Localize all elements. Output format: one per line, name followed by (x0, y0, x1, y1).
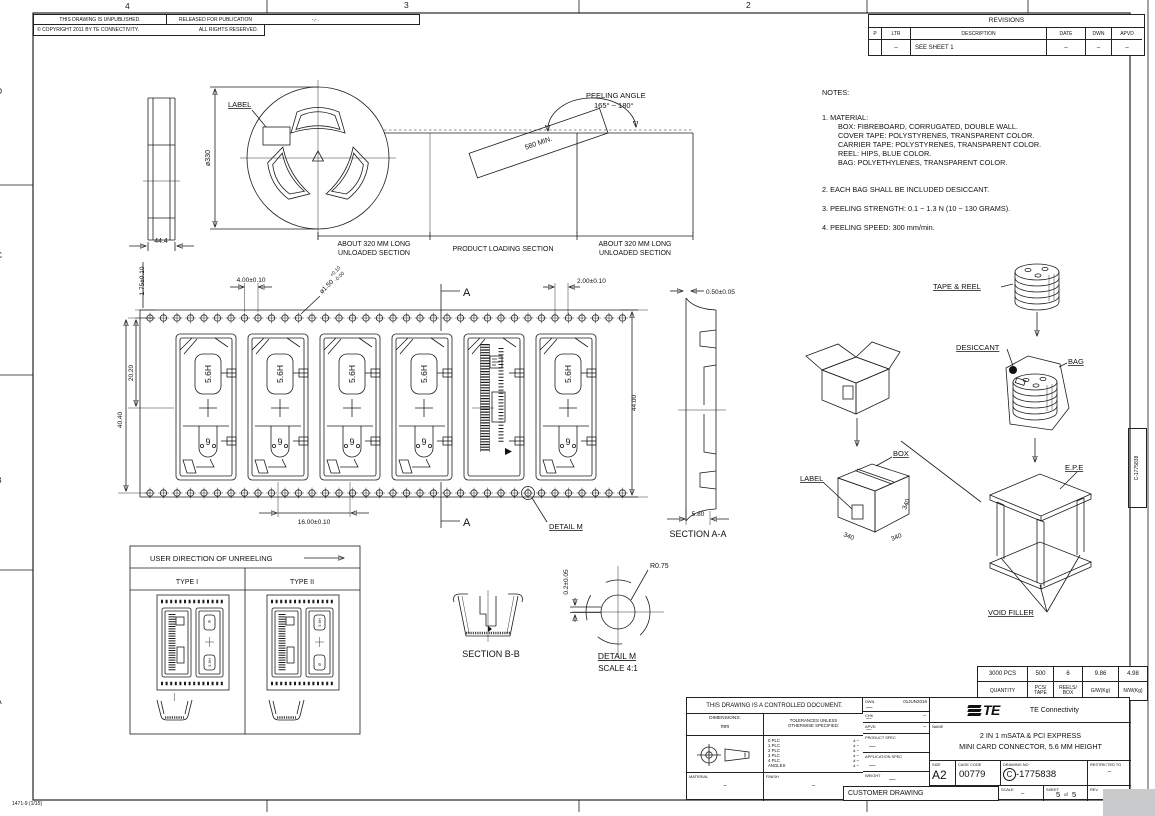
tolerances-cell: TOLERANCES UNLESS OTHERWISE SPECIFIED: (764, 714, 863, 736)
dim-hole-pitch: 4.00±0.10 (237, 277, 266, 284)
open-box (806, 342, 900, 414)
logo-cell: TE TE Connectivity (930, 698, 1131, 723)
svg-text:9: 9 (208, 619, 211, 624)
packaging-flow: TAPE & REEL DESICCANT BAG (800, 264, 1091, 617)
desiccant-label: DESICCANT (956, 343, 1000, 352)
dim-edge-pocket: 2.00±0.10 (577, 278, 606, 285)
unloaded-section-right-2: UNLOADED SECTION (599, 250, 671, 257)
section-bb-title: SECTION B-B (462, 649, 520, 659)
loaded-pocket (464, 334, 524, 480)
cover-tape-peel: 580 MIN. (469, 108, 608, 178)
epe-label: E.P.E (1065, 463, 1083, 472)
void-filler-label: VOID FILLER (988, 608, 1034, 617)
chk-cell: CHK – — (863, 712, 930, 723)
unloaded-section-left-1: ABOUT 320 MM LONG (337, 241, 410, 248)
plc-cell: 0 PLC± – 1 PLC± – 2 PLC± – 3 PLC± – 4 PL… (764, 736, 863, 773)
peeling-angle-value: 165° ~ 180° (594, 101, 634, 110)
revisions-title: REVISIONS (869, 15, 1144, 28)
projection-symbol-icon (687, 736, 764, 773)
zone-number-4: 4 (125, 1, 130, 11)
zone-letter-a: A (0, 696, 2, 706)
quantity-table: 3000 PCS 500 6 9.86 4.98 QUANTITY PCS/TA… (977, 666, 1148, 701)
closed-box: 340 340 340 (838, 464, 912, 543)
dim-tape-width: 44.00 (631, 394, 638, 411)
detail-m-title: DETAIL M (598, 651, 636, 661)
peeling-angle-label: PEELING ANGLE (586, 91, 646, 100)
svg-text:5.6H: 5.6H (207, 658, 212, 667)
projection-cell (687, 736, 764, 773)
unreeling-box: USER DIRECTION OF UNREELING TYPE I TYPE … (130, 546, 360, 734)
dim-pocket-pitch: 16.00±0.10 (298, 519, 331, 526)
te-logo: TE (968, 702, 1000, 718)
bag-label: BAG (1068, 357, 1084, 366)
dim-box-340-height: 340 (901, 498, 912, 511)
dim-hole-to-hole: 40.40 (117, 411, 124, 428)
reel-front-view: LABEL ø330 (205, 80, 396, 240)
reel-label-callout: LABEL (228, 100, 251, 109)
zone-letter-c: C (0, 250, 2, 260)
epe-pallet (990, 474, 1091, 589)
section-a-bottom: A (463, 517, 471, 529)
dim-aa-depth: 5.80 (692, 511, 705, 518)
application-spec-cell: APPLICATION SPEC — (863, 753, 930, 772)
dim-hole-dia: ø1.50 +0.10 -0.00 (316, 265, 347, 296)
corner-gray-patch (1103, 789, 1155, 816)
type1-tape: 9 5.6H (157, 595, 229, 720)
material-cell: MATERIAL – (687, 773, 764, 801)
drawing-no-cell: DRAWING NO C -1775838 (1001, 761, 1088, 786)
company-name: TE Connectivity (1030, 707, 1079, 714)
section-aa-view: 0.50±0.05 5.80 SECTION A-A (667, 289, 735, 539)
reel-label-sticker (263, 127, 290, 145)
name-cell: NAME 2 IN 1 mSATA & PCI EXPRESS MINI CAR… (930, 723, 1131, 761)
svg-text:5.6H: 5.6H (317, 618, 322, 627)
detail-m-view: 0.2±0.05 R0.75 DETAIL M SCALE 4:1 (563, 563, 669, 673)
dim-aa-thickness: 0.50±0.05 (706, 289, 735, 296)
zone-number-2: 2 (746, 0, 751, 10)
zone-letter-b: B (0, 475, 2, 485)
section-a-top: A (463, 287, 471, 299)
dim-hole-to-center: 20.20 (128, 364, 135, 381)
type2-tape: 5.6H 9 (267, 595, 339, 720)
dim-reel-diameter: ø330 (205, 150, 212, 166)
tape-reel-label: TAPE & REEL (933, 282, 981, 291)
margin-drawing-number: C-1775838 (1134, 436, 1140, 500)
product-loading-label: PRODUCT LOADING SECTION (453, 246, 554, 253)
product-spec-cell: PRODUCT SPEC — (863, 734, 930, 753)
part-name-line2: MINI CARD CONNECTOR, 5.6 MM HEIGHT (930, 742, 1131, 751)
detail-m-callout: DETAIL M (549, 522, 583, 531)
dim-detail-radius: R0.75 (650, 563, 669, 570)
customer-drawing-cell: CUSTOMER DRAWING (843, 786, 999, 801)
dim-reel-width: 44.4 (154, 238, 168, 245)
svg-text:ø1.50: ø1.50 (318, 278, 335, 295)
dim-peel-length: 580 MIN. (524, 136, 553, 152)
type1-label: TYPE I (176, 579, 198, 586)
dim-box-340-right: 340 (890, 532, 903, 543)
reel-side-view: 44.4 (129, 98, 194, 251)
unloaded-section-right-1: ABOUT 320 MM LONG (598, 241, 671, 248)
dim-edge-pitch: 1.75±0.10 (139, 266, 146, 295)
restricted-cell: RESTRICTED TO – (1088, 761, 1131, 786)
dim-box-340-left: 340 (842, 531, 855, 542)
section-aa-title: SECTION A-A (669, 529, 726, 539)
detail-m-scale: SCALE 4:1 (598, 664, 638, 673)
scale-cell: SCALE – (999, 786, 1044, 801)
type2-label: TYPE II (290, 579, 314, 586)
carrier-tape-top-view: 1.75±0.10 4.00±0.10 ø1.50 +0.10 -0.00 2.… (117, 262, 648, 531)
part-name-line1: 2 IN 1 mSATA & PCI EXPRESS (930, 731, 1131, 740)
dim-detail-offset: 0.2±0.05 (563, 569, 570, 595)
svg-text:9: 9 (318, 662, 321, 667)
unloaded-section-left-2: UNLOADED SECTION (338, 250, 410, 257)
tape-peel-view: 580 MIN. PEELING ANGLE 165° ~ 180° ABOUT… (318, 91, 693, 257)
margin-drawing-number-box: C-1775838 (1128, 428, 1147, 508)
closed-box-label-callout: LABEL (800, 474, 823, 483)
section-bb-view (454, 590, 523, 642)
cage-code-cell: CAGE CODE 00779 (956, 761, 1001, 786)
title-block: THIS DRAWING IS A CONTROLLED DOCUMENT. D… (686, 697, 1130, 800)
zone-number-3: 3 (404, 0, 409, 10)
box-label: BOX (893, 449, 909, 458)
notes-title: NOTES: (822, 88, 849, 97)
controlled-document: THIS DRAWING IS A CONTROLLED DOCUMENT. (687, 698, 863, 714)
apvd-cell: APVD – — (863, 723, 930, 734)
form-number: 1471-9 (1/15) (12, 801, 42, 807)
revisions-table: REVISIONS P LTR DESCRIPTION DATE DWN APV… (868, 14, 1145, 56)
drawing-sheet: 5.6H 9 (0, 0, 1155, 816)
copyright-strip: © COPYRIGHT 2011 BY TE CONNECTIVITY. ALL… (33, 24, 265, 36)
size-cell: SIZE A2 (930, 761, 956, 786)
dwn-cell: DWN 01JUN2016 — (863, 698, 930, 712)
dimensions-cell: DIMENSIONS: mm (687, 714, 764, 736)
unreeling-title: USER DIRECTION OF UNREELING (150, 554, 273, 563)
zone-letter-d: D (0, 86, 2, 96)
sheet-cell: SHEET 5 of 5 (1044, 786, 1088, 801)
